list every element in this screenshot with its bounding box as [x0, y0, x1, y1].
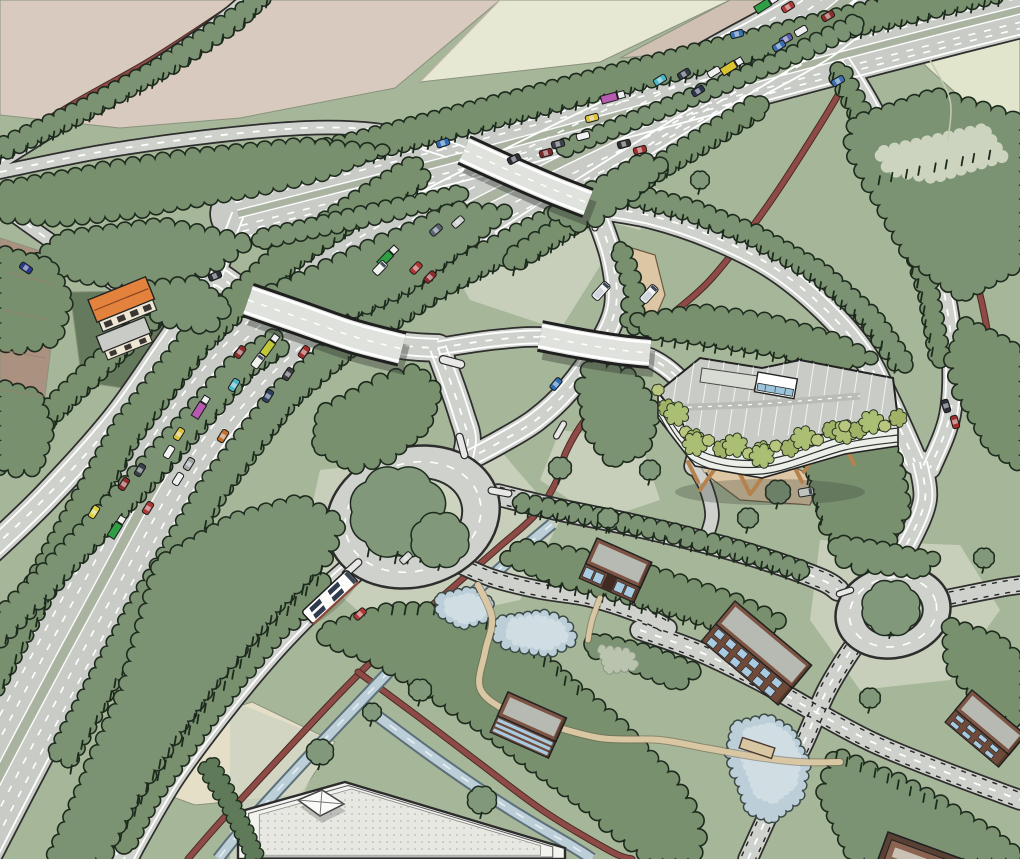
tree	[974, 548, 995, 568]
facade-plant	[702, 434, 714, 446]
tree	[409, 679, 432, 701]
facade-plant	[652, 384, 664, 396]
tree	[860, 688, 881, 708]
tree	[549, 457, 572, 479]
facade-plant	[770, 440, 782, 452]
tree	[640, 460, 661, 480]
tree	[738, 508, 759, 528]
tree	[363, 703, 382, 721]
facade-plant	[878, 420, 890, 432]
facade-plant	[811, 434, 823, 446]
tree	[307, 739, 334, 765]
tree	[691, 171, 710, 189]
scene-svg: Artist impression: motorway interchange …	[0, 0, 1020, 859]
illustration-stage: Artist impression: motorway interchange …	[0, 0, 1020, 859]
tree	[468, 786, 497, 813]
tree	[598, 508, 619, 528]
